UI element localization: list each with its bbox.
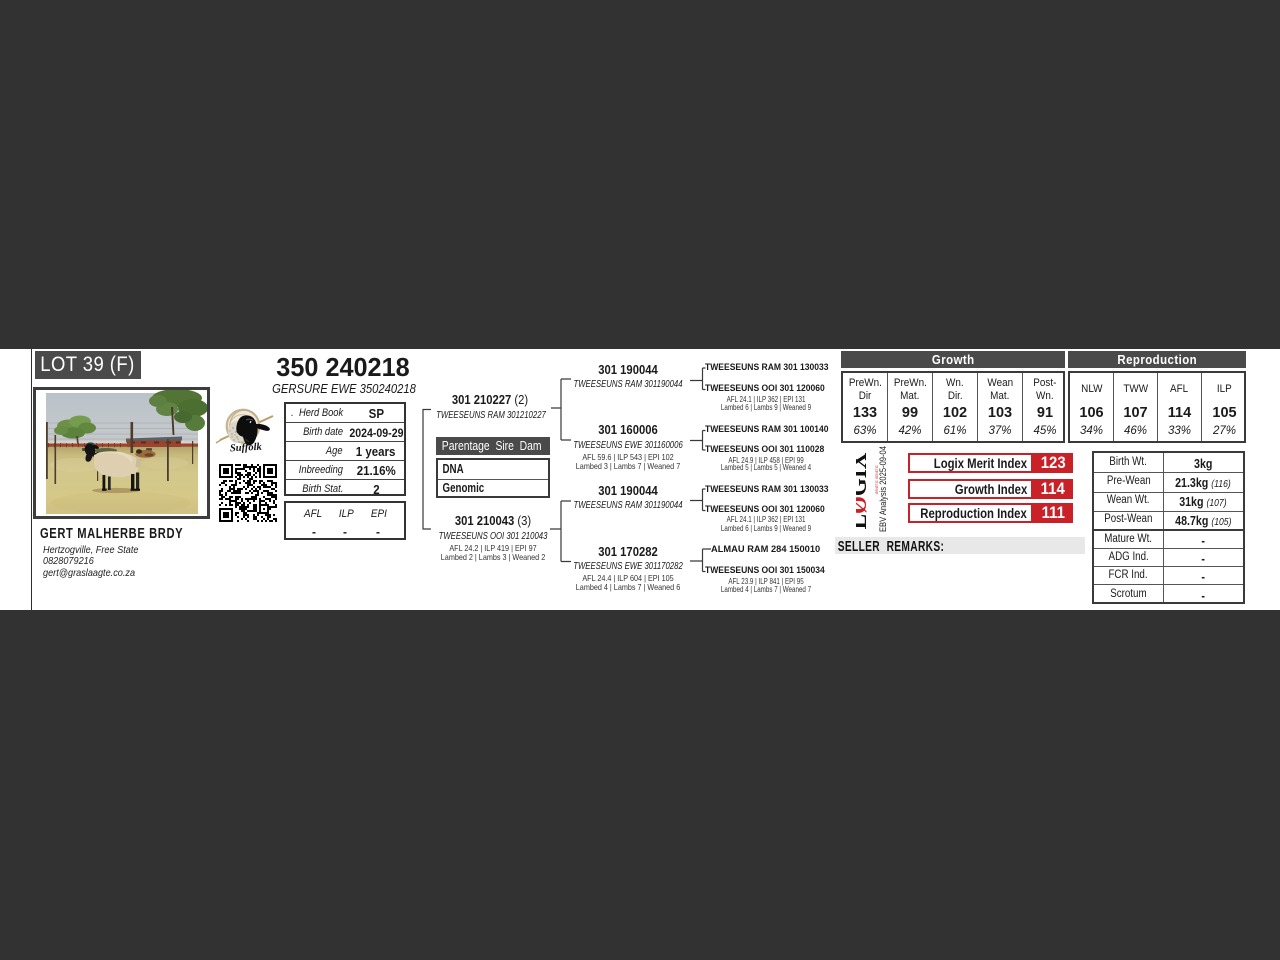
- svg-text:LØGIX: LØGIX: [856, 452, 871, 529]
- svg-text:EBV Analysis 2025-09-04: EBV Analysis 2025-09-04: [879, 446, 888, 532]
